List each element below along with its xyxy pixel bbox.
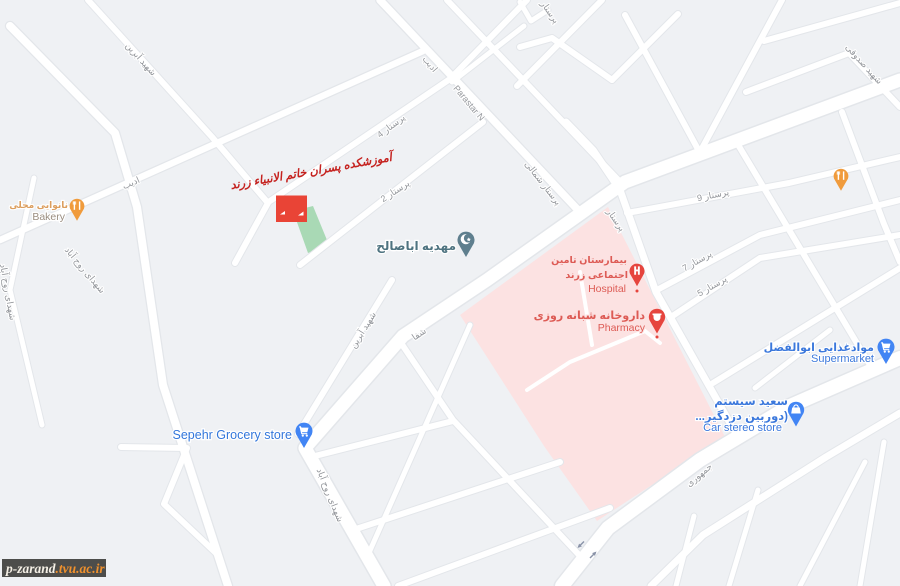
svg-text:بیمارستان تامین: بیمارستان تامین bbox=[551, 255, 627, 266]
svg-text:Pharmacy: Pharmacy bbox=[598, 322, 646, 334]
svg-text:Car stereo store: Car stereo store bbox=[703, 422, 782, 434]
svg-text:Sepehr Grocery store: Sepehr Grocery store bbox=[173, 428, 293, 442]
svg-text:p-zarand.tvu.ac.ir: p-zarand.tvu.ac.ir bbox=[5, 561, 105, 576]
svg-text:Hospital: Hospital bbox=[588, 283, 626, 295]
svg-text:مهدیه اباصالح: مهدیه اباصالح bbox=[376, 239, 456, 253]
svg-text:سعید سیستم: سعید سیستم bbox=[714, 396, 788, 408]
svg-text:نانوایی محلی: نانوایی محلی bbox=[9, 200, 68, 211]
svg-text:Bakery: Bakery bbox=[32, 211, 65, 223]
svg-text:اجتماعی زرند: اجتماعی زرند bbox=[565, 270, 628, 281]
svg-text:Supermarket: Supermarket bbox=[811, 353, 874, 365]
svg-text:داروخانه شبانه روزی: داروخانه شبانه روزی bbox=[534, 310, 646, 322]
